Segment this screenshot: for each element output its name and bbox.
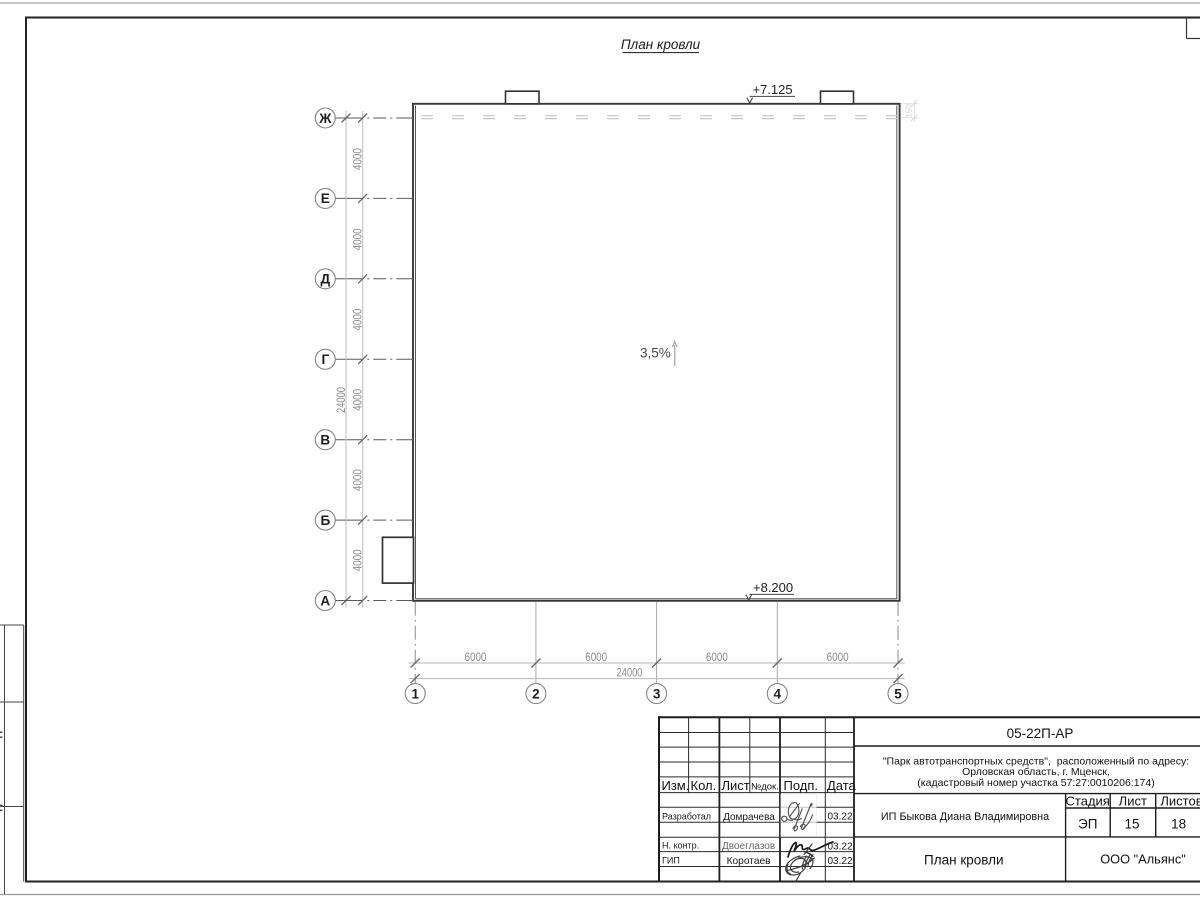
svg-text:ГИП: ГИП [662,856,680,866]
svg-text:150: 150 [905,104,914,118]
svg-text:№док.: №док. [751,781,779,792]
svg-text:ООО "Альянс": ООО "Альянс" [1100,852,1186,867]
svg-text:1: 1 [411,686,419,701]
svg-text:Подп.: Подп. [784,778,819,793]
svg-text:(кадастровый номер участка 57:: (кадастровый номер участка 57:27:0010206… [917,777,1154,789]
svg-text:План кровли: План кровли [621,37,701,52]
svg-text:24000: 24000 [617,665,643,679]
svg-text:А: А [320,593,330,608]
svg-text:4: 4 [774,686,782,701]
svg-text:Разработал: Разработал [662,811,711,821]
svg-text:2: 2 [532,686,540,701]
svg-text:Лист: Лист [1119,793,1147,808]
svg-text:6000: 6000 [706,650,728,664]
svg-text:6000: 6000 [465,650,487,664]
svg-text:4000: 4000 [351,469,365,491]
svg-text:В: В [320,433,330,448]
svg-text:План кровли: План кровли [924,852,1004,867]
svg-text:Б: Б [320,513,330,528]
svg-text:4000: 4000 [351,228,365,250]
svg-text:3,5%: 3,5% [640,346,671,361]
svg-text:Дата: Дата [827,778,857,793]
svg-text:4000: 4000 [351,549,365,571]
svg-text:3: 3 [653,686,661,701]
svg-text:Изм.: Изм. [662,778,690,793]
svg-text:+7.125: +7.125 [753,82,793,97]
svg-text:Стадия: Стадия [1066,793,1110,808]
svg-text:Лист: Лист [722,778,750,793]
svg-text:ЭП: ЭП [1078,816,1097,831]
svg-text:Г: Г [321,352,329,367]
svg-text:5: 5 [894,686,902,701]
svg-text:05-22П-АР: 05-22П-АР [1007,726,1074,741]
svg-text:18: 18 [1171,816,1186,831]
svg-text:+8.200: +8.200 [753,580,793,595]
svg-text:Д: Д [320,272,330,287]
svg-text:03.22: 03.22 [827,812,852,823]
svg-text:03.22: 03.22 [827,856,852,867]
svg-text:6000: 6000 [827,650,849,664]
svg-text:Листов: Листов [1160,793,1200,808]
svg-text:Е: Е [321,191,330,206]
svg-text:Н. контр.: Н. контр. [662,841,699,851]
svg-text:4000: 4000 [351,148,365,170]
svg-text:Домрачева: Домрачева [723,812,775,823]
svg-text:Кол.: Кол. [691,778,717,793]
svg-text:4000: 4000 [351,389,365,411]
svg-text:Ж: Ж [318,111,332,126]
svg-text:15: 15 [1124,816,1139,831]
svg-text:Коротаев: Коротаев [727,856,771,867]
svg-text:ИП Быкова Диана Владимировна: ИП Быкова Диана Владимировна [881,811,1049,823]
svg-text:6000: 6000 [585,650,607,664]
svg-text:Двоеглазов: Двоеглазов [722,841,775,852]
svg-text:24000: 24000 [334,387,348,413]
svg-text:4000: 4000 [351,308,365,330]
